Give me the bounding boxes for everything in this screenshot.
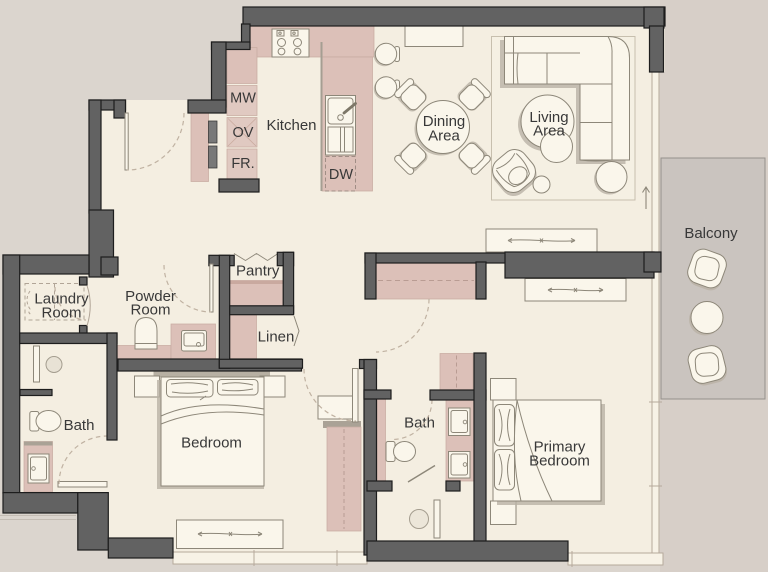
svg-text:Area: Area [428,128,460,145]
svg-text:Bedroom: Bedroom [529,452,590,469]
svg-text:Balcony: Balcony [684,225,738,242]
svg-text:FR.: FR. [231,156,254,172]
svg-text:Room: Room [130,302,170,319]
svg-text:Bath: Bath [64,417,95,434]
svg-text:Area: Area [533,123,565,140]
svg-text:Room: Room [41,304,81,321]
svg-text:MW: MW [230,91,256,107]
svg-text:OV: OV [233,125,254,141]
svg-text:Pantry: Pantry [236,263,280,280]
svg-text:DW: DW [329,167,353,183]
svg-text:Bedroom: Bedroom [181,435,242,452]
svg-text:Linen: Linen [258,329,295,346]
svg-text:Kitchen: Kitchen [266,117,316,134]
